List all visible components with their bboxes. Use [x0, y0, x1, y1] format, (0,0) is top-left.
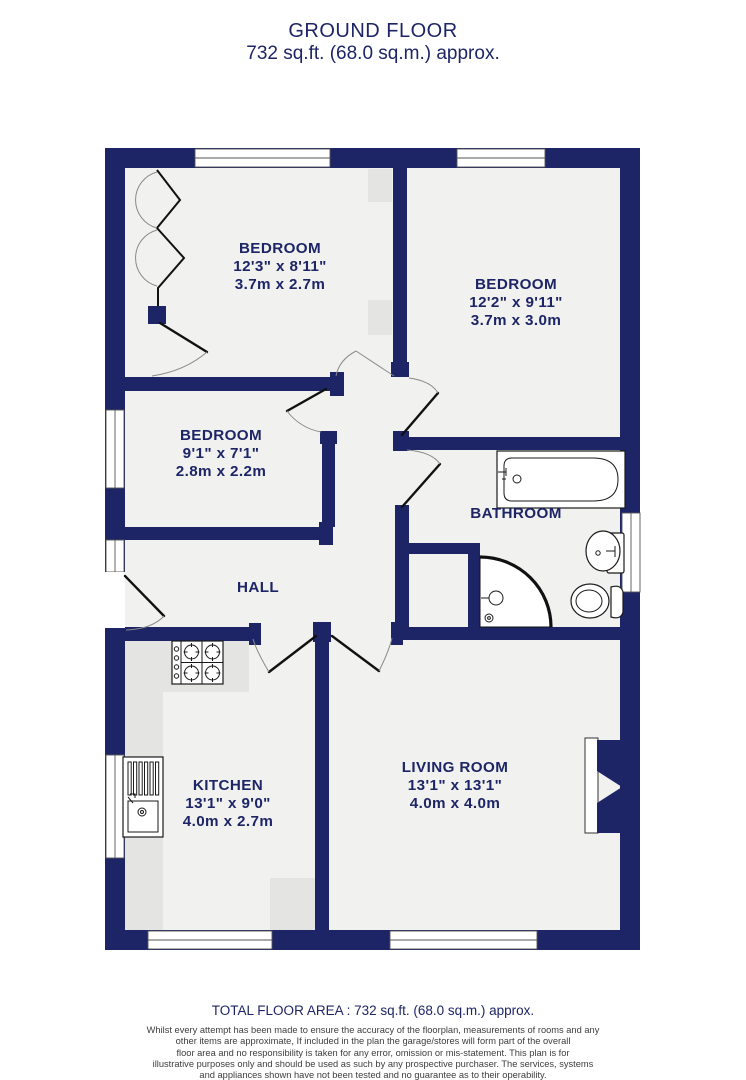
window-kitchen-left: [106, 755, 124, 858]
room-label-hall: HALL: [237, 579, 279, 596]
wall-jamb: [249, 623, 261, 645]
room-dim-imperial: 12'3" x 8'11": [233, 258, 327, 275]
footer: TOTAL FLOOR AREA : 732 sq.ft. (68.0 sq.m…: [0, 1003, 746, 1080]
washbasin-icon: [586, 531, 624, 573]
room-name: HALL: [237, 579, 279, 596]
window-bedroom1-top: [195, 149, 330, 167]
disclaimer-line: other items are approximate, If included…: [0, 1036, 746, 1047]
room-dim-imperial: 12'2" x 9'11": [469, 294, 563, 311]
room-name: BEDROOM: [180, 427, 262, 444]
disclaimer-line: and appliances shown have not been teste…: [0, 1070, 746, 1080]
total-floor-area: TOTAL FLOOR AREA : 732 sq.ft. (68.0 sq.m…: [0, 1003, 746, 1018]
wall-bedroom2-bathroom: [393, 437, 640, 450]
wall-hall-bathroom: [395, 505, 409, 627]
kitchen-counter: [270, 878, 316, 930]
room-label-bedroom-2: BEDROOM 12'2" x 9'11" 3.7m x 3.0m: [469, 276, 563, 329]
bedroom1-cupboard: [368, 300, 392, 335]
wall-bedroom1-bottom: [105, 377, 336, 391]
room-label-bathroom: BATHROOM: [470, 505, 562, 522]
room-name: BEDROOM: [475, 276, 557, 293]
window-kitchen-bottom: [148, 931, 272, 949]
room-dim-metric: 3.7m x 3.0m: [471, 312, 562, 329]
room-dim-metric: 4.0m x 2.7m: [183, 813, 274, 830]
room-label-living-room: LIVING ROOM 13'1" x 13'1" 4.0m x 4.0m: [402, 759, 509, 812]
wall-jamb: [313, 622, 331, 642]
window-bedroom2-top: [457, 149, 545, 167]
wall-living-top: [393, 627, 640, 640]
floorplan-drawing: BEDROOM 12'3" x 8'11" 3.7m x 2.7m BEDROO…: [0, 0, 746, 1080]
bedroom1-cupboard: [368, 169, 392, 202]
disclaimer-line: illustrative purposes only and should be…: [0, 1059, 746, 1070]
gas-hob-icon: [172, 641, 223, 684]
room-dim-metric: 2.8m x 2.2m: [176, 463, 267, 480]
wall-bedroom3-bottom: [105, 527, 333, 540]
wall-jamb: [330, 372, 344, 396]
kitchen-sink-icon: [123, 757, 163, 837]
window-bedroom3-left: [106, 410, 124, 488]
wall-jamb: [393, 431, 409, 451]
room-label-bedroom-3: BEDROOM 9'1" x 7'1" 2.8m x 2.2m: [176, 427, 267, 480]
window-living-bottom: [390, 931, 537, 949]
room-label-kitchen: KITCHEN 13'1" x 9'0" 4.0m x 2.7m: [183, 777, 274, 830]
window-hall-left: [106, 540, 124, 572]
wall-kitchen-living: [315, 627, 329, 950]
room-dim-metric: 3.7m x 2.7m: [235, 276, 326, 293]
disclaimer-line: floor area and no responsibility is take…: [0, 1048, 746, 1059]
room-dim-imperial: 13'1" x 9'0": [185, 795, 271, 812]
window-bathroom-right: [622, 513, 640, 592]
bathtub-icon: [497, 451, 625, 508]
room-name: KITCHEN: [193, 777, 263, 794]
room-label-bedroom-1: BEDROOM 12'3" x 8'11" 3.7m x 2.7m: [233, 240, 327, 293]
front-door-opening: [105, 572, 125, 628]
room-dim-metric: 4.0m x 4.0m: [410, 795, 501, 812]
wall-jamb: [320, 431, 337, 444]
room-dim-imperial: 9'1" x 7'1": [183, 445, 260, 462]
wall-bedroom3-right: [322, 431, 335, 527]
wall-jamb: [391, 362, 409, 377]
wall-kitchen-top: [105, 627, 253, 641]
room-name: BATHROOM: [470, 505, 562, 522]
wall-bedroom1-bedroom2: [393, 168, 407, 364]
wall-shower-left: [468, 543, 480, 627]
wall-jamb: [319, 522, 333, 545]
toilet-icon: [571, 584, 623, 618]
room-name: BEDROOM: [239, 240, 321, 257]
floorplan-page: GROUND FLOOR 732 sq.ft. (68.0 sq.m.) app…: [0, 0, 746, 1080]
room-dim-imperial: 13'1" x 13'1": [408, 777, 502, 794]
exterior-wall-top: [105, 148, 640, 168]
disclaimer-line: Whilst every attempt has been made to en…: [0, 1025, 746, 1036]
room-name: LIVING ROOM: [402, 759, 509, 776]
